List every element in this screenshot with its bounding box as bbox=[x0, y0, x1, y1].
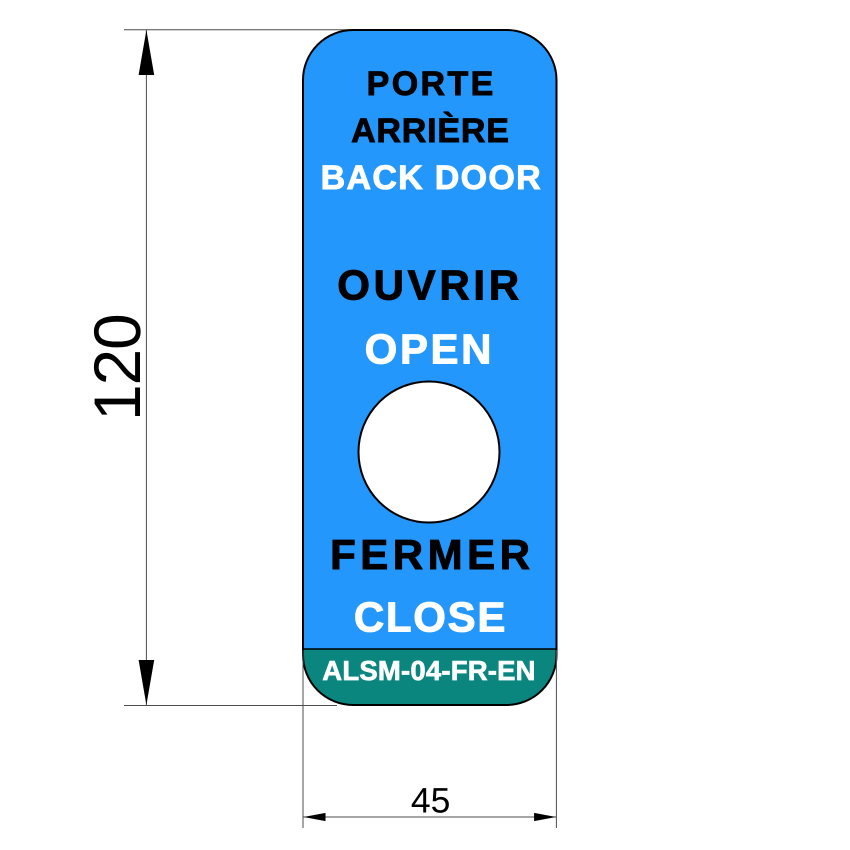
svg-text:OPEN: OPEN bbox=[365, 326, 494, 373]
svg-text:BACK DOOR: BACK DOOR bbox=[321, 159, 542, 197]
svg-text:ALSM-04-FR-EN: ALSM-04-FR-EN bbox=[322, 655, 535, 686]
svg-text:CLOSE: CLOSE bbox=[354, 594, 507, 641]
svg-text:120: 120 bbox=[80, 314, 154, 421]
svg-text:45: 45 bbox=[411, 781, 451, 821]
svg-text:FERMER: FERMER bbox=[330, 531, 534, 578]
svg-text:PORTE: PORTE bbox=[367, 65, 496, 103]
svg-text:ARRIÈRE: ARRIÈRE bbox=[351, 111, 510, 150]
svg-text:OUVRIR: OUVRIR bbox=[337, 262, 523, 309]
